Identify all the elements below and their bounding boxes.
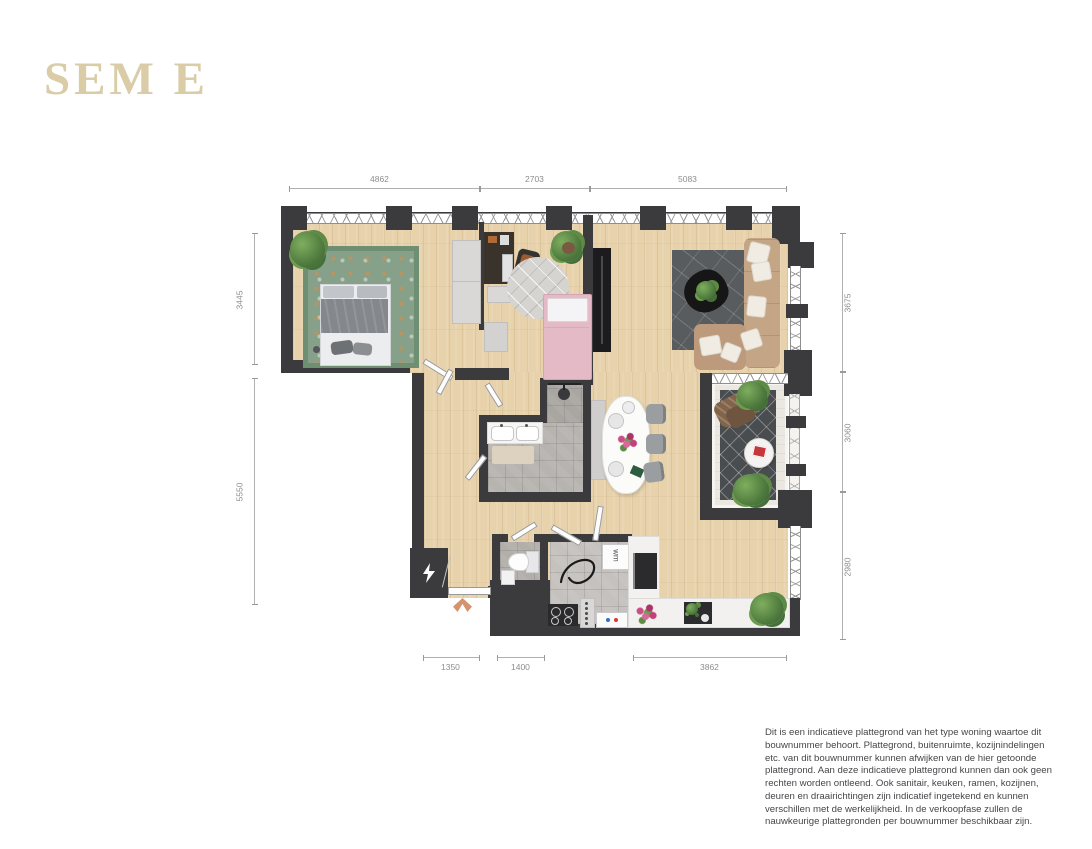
dim-label-right-1: 3675 [842, 294, 852, 313]
pillow [750, 260, 772, 282]
wall-pier-east [788, 242, 814, 268]
plant [733, 474, 769, 506]
plant [686, 603, 698, 615]
burner [551, 617, 559, 625]
cooktop [548, 604, 578, 626]
pillow [323, 286, 354, 298]
cabinet [484, 322, 508, 352]
wall-pier-east [786, 416, 806, 428]
plate [608, 413, 624, 429]
disclaimer-text: Dit is een indicatieve plattegrond van h… [765, 727, 1053, 829]
shower-arm [563, 384, 565, 390]
plant [290, 231, 325, 268]
window [412, 213, 452, 224]
plate [622, 401, 635, 414]
window [478, 213, 546, 224]
cushion [352, 342, 372, 356]
dim-label-bottom-1: 1350 [441, 662, 460, 672]
wall-bathroom-south [479, 492, 590, 502]
washing-machine: wm [602, 544, 630, 570]
blanket [321, 299, 388, 333]
dining-chair [646, 404, 666, 424]
book [630, 465, 645, 478]
dim-label-bottom-3: 3862 [700, 662, 719, 672]
wall-pier [386, 206, 412, 230]
sink-basin [516, 426, 539, 441]
wall-pier-east [786, 304, 808, 318]
oven [633, 553, 657, 589]
dim-line [480, 188, 590, 189]
dim-label-right-2: 3060 [842, 424, 852, 443]
kitchen-tall-cabinet [628, 536, 660, 600]
exterior-notch [412, 598, 492, 640]
window [752, 213, 772, 224]
vanity [487, 422, 543, 444]
plant [696, 281, 716, 300]
electric-bolt-icon [422, 563, 436, 583]
sink-basin [491, 426, 514, 441]
desk-item [500, 235, 509, 245]
dim-line [590, 188, 787, 189]
burner [564, 617, 572, 625]
wall-east [788, 212, 800, 244]
wall-pier [726, 206, 752, 230]
door-entrance [448, 587, 491, 595]
wall-toilet-west [492, 534, 500, 590]
book [752, 445, 767, 458]
pillow [547, 298, 588, 322]
faucet [701, 614, 709, 622]
desk-item [488, 236, 497, 243]
dim-line [289, 188, 480, 189]
dim-line [497, 657, 545, 658]
cable-icon [556, 550, 602, 592]
plant-pot [562, 242, 575, 254]
wall-toilet-north [492, 534, 508, 542]
wall-utility-north2 [584, 534, 632, 542]
wall-balcony-west [700, 373, 712, 518]
cold-tap-icon [606, 618, 610, 622]
window-kitchen-east [790, 526, 801, 600]
dim-line [254, 378, 255, 605]
wall-pier [546, 206, 572, 230]
dim-label-top-2: 2703 [525, 174, 544, 184]
dim-line [423, 657, 480, 658]
toilet-bowl [508, 553, 529, 571]
plate [608, 461, 624, 477]
dim-label-left-2: 5550 [234, 483, 244, 502]
knob-panel [580, 598, 595, 628]
wall-toilet-east [540, 534, 548, 590]
bedroom1-bed [320, 284, 391, 366]
floor-lamp [313, 346, 320, 353]
dim-label-left-1: 3445 [234, 291, 244, 310]
wardrobe-divider [453, 281, 480, 282]
dim-label-top-3: 5083 [678, 174, 697, 184]
wall-pier [640, 206, 666, 230]
tv-cabinet [593, 248, 611, 352]
wall-bedroom2-south [455, 368, 509, 380]
hot-tap-icon [614, 618, 618, 622]
flowers [614, 430, 639, 453]
wardrobe [452, 240, 481, 324]
faucet [525, 424, 528, 427]
washing-machine-label: wm [612, 549, 621, 561]
dim-line [254, 233, 255, 365]
plant [737, 381, 767, 409]
wall-pier-east [786, 464, 806, 476]
page-title: SEM E [44, 52, 209, 106]
dim-label-bottom-2: 1400 [511, 662, 530, 672]
tech-closet [410, 548, 448, 598]
wall-west-hall [412, 373, 424, 552]
dim-label-top-1: 4862 [370, 174, 389, 184]
kitchen-sink-unit [684, 602, 712, 624]
tv-screen [601, 256, 603, 344]
wall-balcony-ne [784, 350, 812, 396]
dim-label-right-3: 2980 [842, 558, 852, 577]
wall-bathroom-east [583, 382, 591, 502]
pillow [699, 334, 723, 356]
plant [750, 593, 784, 625]
wall-pier [452, 206, 478, 230]
pillow [746, 295, 767, 318]
dining-chair [643, 461, 666, 484]
pillow [357, 286, 387, 298]
burner [551, 607, 561, 617]
bedroom2-bed [543, 294, 592, 380]
wall-balcony-se [778, 490, 812, 528]
flowers [632, 601, 659, 626]
bath-mat [492, 446, 534, 464]
window [307, 213, 386, 224]
dining-chair [646, 434, 666, 454]
knobs [585, 602, 588, 605]
toilet-sink [501, 570, 515, 585]
burner [564, 607, 574, 617]
dim-line [633, 657, 787, 658]
faucet [500, 424, 503, 427]
window [666, 213, 726, 224]
blanket-fold [544, 327, 589, 328]
wall-west-bedroom [281, 212, 293, 373]
brochure-page: SEM E [0, 0, 1092, 849]
cushion [330, 340, 354, 356]
utility-sink [596, 612, 628, 628]
balcony-table [744, 438, 774, 468]
